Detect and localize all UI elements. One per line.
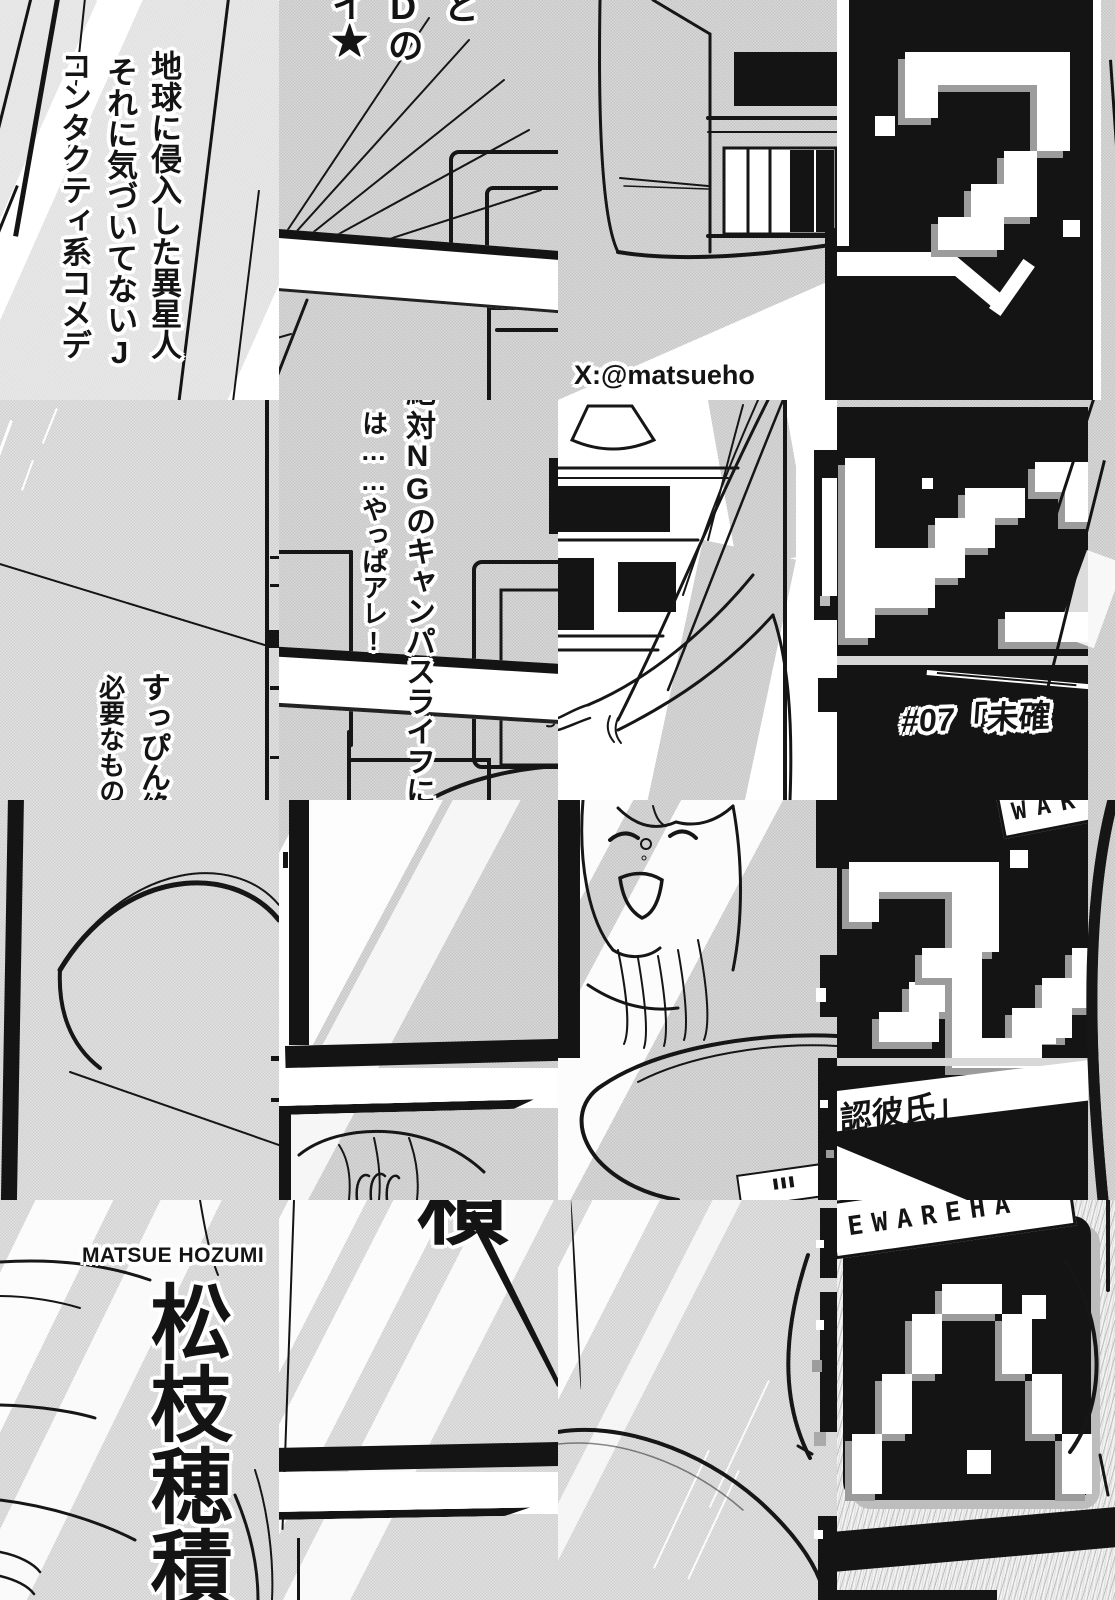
pixel-ha-glyph [942,1284,972,1314]
tile-r0-c3 [837,0,1115,400]
tagline-cont-3-star: イ★ [327,0,367,58]
tile-r3-c0: MATSUE HOZUMI 松枝穂積 [0,1200,279,1600]
hair-curve-art [1085,800,1115,1200]
tagline-column-1: 地球に侵入した異星人 [146,50,180,360]
pixel-panel-edge [816,800,837,868]
episode-title-right: 認彼氏」 [837,1058,1105,1141]
pixel-gray-step [812,1360,822,1372]
tile-r3-c3: EWAREHA [837,1200,1115,1600]
spear-core [937,672,1077,686]
speech-column-3: 対NGのキャンパスライフに [401,410,434,800]
thin-line [297,1538,300,1600]
scrambled-manga-page: 地球に侵入した異星人 それに気づいてないJ コンタクティ系コメデ と Dの イ★ [0,0,1115,1600]
tile-r0-c2: X:@matsueho [558,0,837,400]
gutter-strip [1093,0,1101,400]
pixel-sparkle [890,1028,900,1038]
pixel-sparkle [875,116,895,136]
border-tick [270,686,279,690]
speech-column-4: は……やっぱアレ! [359,410,388,656]
swoosh-band: 認彼氏」 [837,1058,1107,1131]
pixel-panel-edge [818,1516,837,1600]
border-tick [271,1056,279,1061]
tagline-column-3: コンタクティ系コメデ [56,50,90,360]
pixel-panel-edge [818,1058,837,1200]
pixel-panel-notch [816,988,826,1002]
bookshelf-art [558,0,837,400]
pixel-panel-edge [818,678,837,712]
tagline-cont-1: と [439,0,479,24]
border-blob [268,630,279,648]
bottom-ink-edge [837,1590,997,1600]
frame-band [279,1442,558,1472]
pixel-re-glyph [952,888,982,918]
pixel-sparkle [922,478,933,489]
tile-r2-c1 [279,800,558,1200]
sparkle-line [0,420,13,460]
tile-r0-c1: と Dの イ★ [279,0,558,400]
pixel-sparkle [1042,1030,1056,1044]
pixel-sparkle [1022,1295,1046,1319]
border-tick [270,584,279,587]
panel-border [265,400,269,800]
tile-r0-c0: 地球に侵入した異星人 それに気づいてないJ コンタクティ系コメデ [0,0,279,400]
episode-title-left: #07「未確 [900,691,1053,742]
author-kanji: 松枝穂積 [140,1280,226,1600]
tile-r1-c0: すっぴん絶 必要なもの [0,400,279,800]
pixel-wa-glyph [905,52,938,85]
pixel-sparkle [967,1450,991,1474]
pixel-panel-notch [822,478,837,596]
tile-r1-c1: 絶 対NGのキャンパスライフに は……やっぱアレ! [279,400,558,800]
pixel-sparkle [1010,850,1028,868]
pixel-panel-edge [820,1292,837,1432]
pixel-sparkle [1063,220,1080,237]
pixel-panel-edge [820,955,837,1017]
pixel-partial-glyph [1035,462,1065,492]
x-handle: X:@matsueho [574,360,755,391]
diagonal-line [0,560,267,647]
tile-r1-c3: #07「未確 [837,400,1115,800]
speech-column-1: すっぴん絶 [136,672,169,800]
panel-gutter-band [837,656,1088,665]
table-rim-art [0,800,279,1200]
tile-r2-c3: WAR 認彼氏」 [837,800,1115,1200]
table-sweep-art [558,1200,837,1600]
halftone-sliver [837,400,1089,407]
face-edge-art [1056,1200,1115,1600]
speech-partial-top: 絶 [401,400,434,406]
sparkle-line [42,408,58,444]
halftone-strip [1101,0,1115,400]
pixel-wa2-glyph [849,862,879,892]
tile-r2-c0 [0,800,279,1200]
pixel-sparkle [820,1100,828,1108]
frame-gap [279,1472,558,1514]
pixel-gray-step [826,1150,834,1158]
sparkle-line [21,460,34,491]
bubble-gap [837,252,955,276]
pixel-sparkle [989,198,1000,209]
tile-r2-c2 [558,800,837,1200]
pixel-gray-step [820,596,830,606]
speech-column-2: 必要なもの [96,674,125,800]
tagline-cont-2: Dの [383,0,423,63]
pixel-hi-glyph [845,458,875,488]
tile-r3-c1: 積 [279,1200,558,1600]
panel-border [825,228,837,400]
border-tick [270,756,279,759]
pixel-panel-notch [816,1240,824,1248]
pixel-panel-notch [816,1320,824,1330]
tagline-column-2: それに気づいてないJ [102,56,136,370]
tile-r3-c2 [558,1200,837,1600]
pixel-gray-step [814,1432,826,1446]
border-tick [271,1098,279,1102]
border-tick [270,556,279,559]
gutter-strip [796,400,814,800]
smiling-girl-art [558,800,837,1200]
head-top-art [279,800,558,1200]
light-wedge [837,1140,967,1200]
pixel-sparkle [814,1530,823,1539]
author-romaji: MATSUE HOZUMI [82,1244,264,1268]
tile-r1-c2 [558,400,837,800]
